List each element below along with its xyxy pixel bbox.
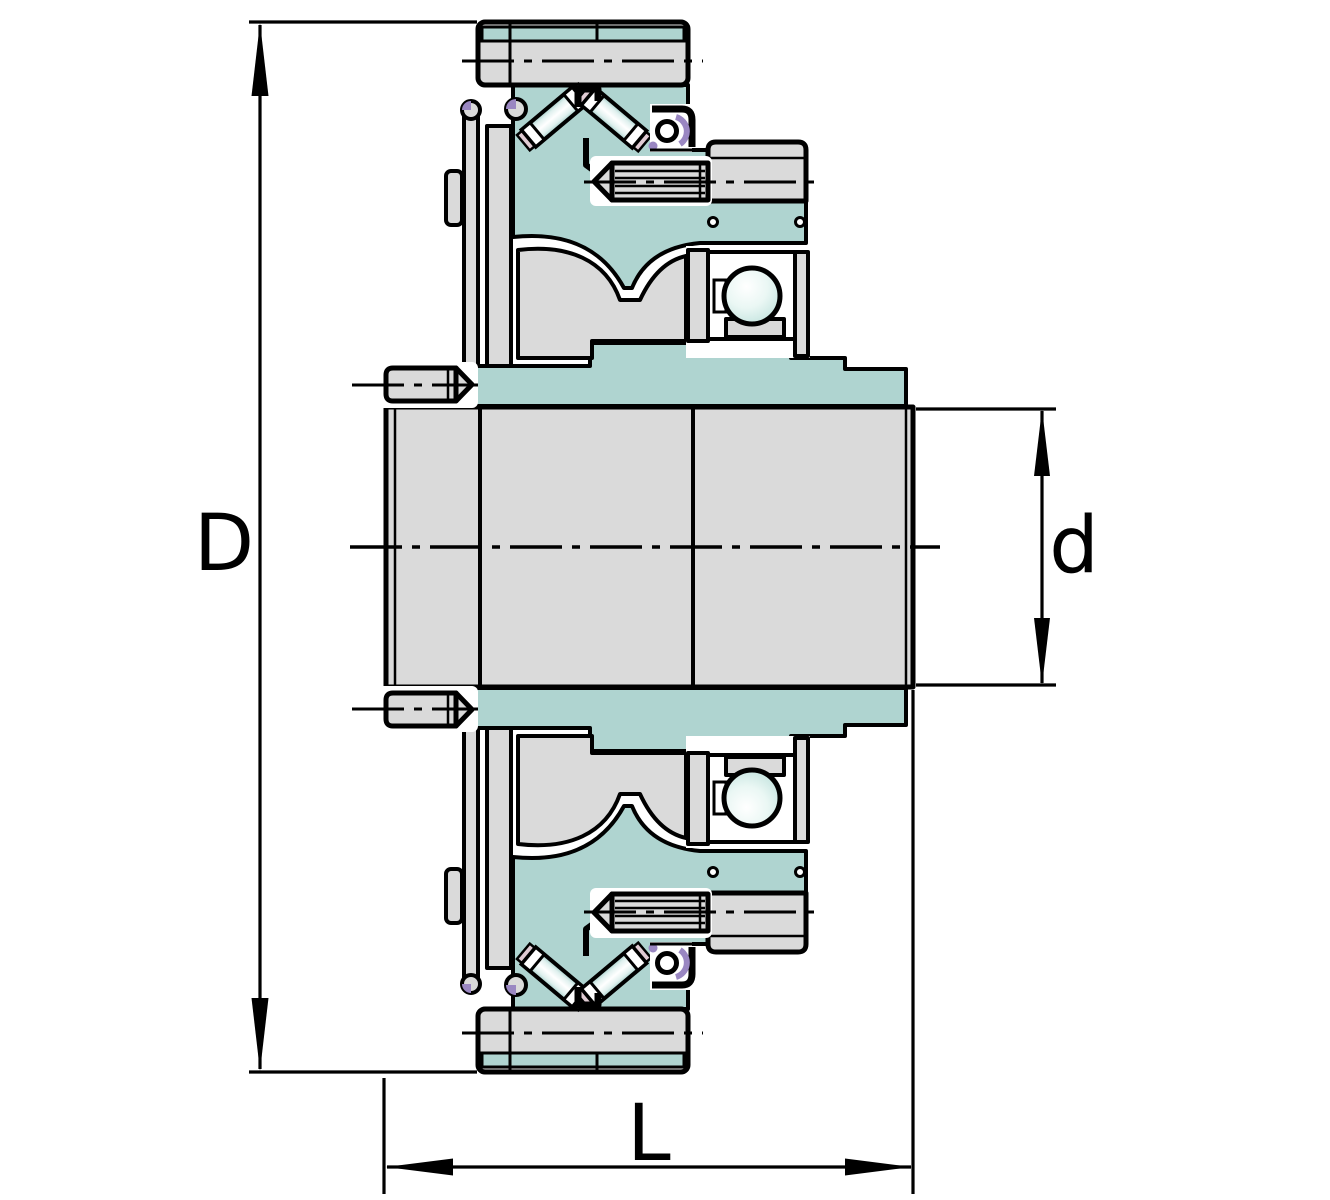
lower-half-assembly-mirror bbox=[352, 686, 906, 1072]
dim-D-arrow-up bbox=[252, 23, 269, 96]
collar-tab bbox=[446, 171, 462, 225]
collar-strip-1 bbox=[464, 108, 478, 366]
ball-unit-right-wall bbox=[795, 252, 808, 356]
dim-L-arrow-right bbox=[845, 1159, 912, 1176]
dim-d-arrow-down bbox=[1034, 618, 1050, 685]
dim-D-label: D bbox=[194, 499, 254, 589]
seal-ring bbox=[658, 122, 677, 141]
dim-d-label: d bbox=[1049, 501, 1099, 591]
dim-L-label: L bbox=[627, 1089, 671, 1179]
o-ring-seal-2-accent bbox=[506, 99, 516, 109]
plug-hole-left bbox=[709, 218, 718, 227]
ball-unit-left-wall bbox=[688, 250, 708, 341]
sleeve-set-screw bbox=[352, 362, 478, 408]
plug-body bbox=[708, 142, 806, 201]
collar-strip-2 bbox=[487, 126, 511, 366]
bearing-cross-section-diagram: D d L bbox=[0, 0, 1330, 1200]
bearing-ball bbox=[724, 268, 780, 324]
upper-half-assembly bbox=[352, 22, 906, 408]
ball-bearing-unit bbox=[686, 246, 810, 358]
dim-d-arrow-up bbox=[1034, 409, 1050, 476]
labyrinth-seal bbox=[649, 104, 693, 152]
dim-D-arrow-down bbox=[252, 998, 269, 1071]
dim-L-arrow-left bbox=[386, 1159, 453, 1176]
dimension-d: d bbox=[916, 409, 1099, 685]
adapter-cone bbox=[518, 249, 686, 358]
outer-ring-block bbox=[462, 22, 703, 85]
bearing-cross-section-page: D d L bbox=[0, 0, 1330, 1200]
plug-hole-right bbox=[796, 218, 805, 227]
outer-ring-teal-band bbox=[482, 27, 684, 41]
